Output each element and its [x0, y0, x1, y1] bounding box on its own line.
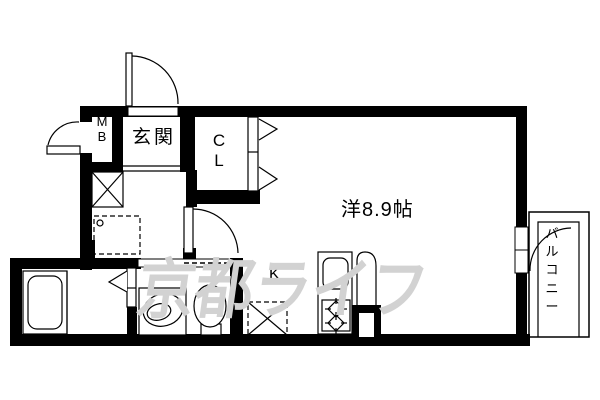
label-balcony: バルコニー	[545, 225, 559, 316]
label-closet: CL	[212, 131, 226, 172]
entrance-door-leaf	[126, 53, 132, 106]
mb-door-opening	[80, 122, 92, 153]
bathroom-folding-door	[109, 268, 136, 307]
closet-folding-door	[248, 117, 277, 191]
label-genkan: 玄関	[132, 127, 176, 150]
label-meter-box: MB	[95, 115, 109, 145]
bathtub	[23, 271, 67, 334]
watermark: 京都ライフ	[132, 237, 435, 331]
mb-door-arc	[48, 122, 79, 145]
floor-plan: 玄関 MB CL 洋8.9帖 K バルコニー 京都ライフ	[0, 0, 600, 400]
washing-machine-space	[94, 216, 140, 254]
entrance-door-arc	[132, 56, 178, 104]
label-western-room: 洋8.9帖	[341, 198, 414, 222]
balcony-outline	[529, 212, 589, 337]
entrance-threshold	[128, 107, 178, 116]
duct-shaft-x	[92, 172, 123, 207]
mb-door-leaf	[47, 146, 80, 154]
